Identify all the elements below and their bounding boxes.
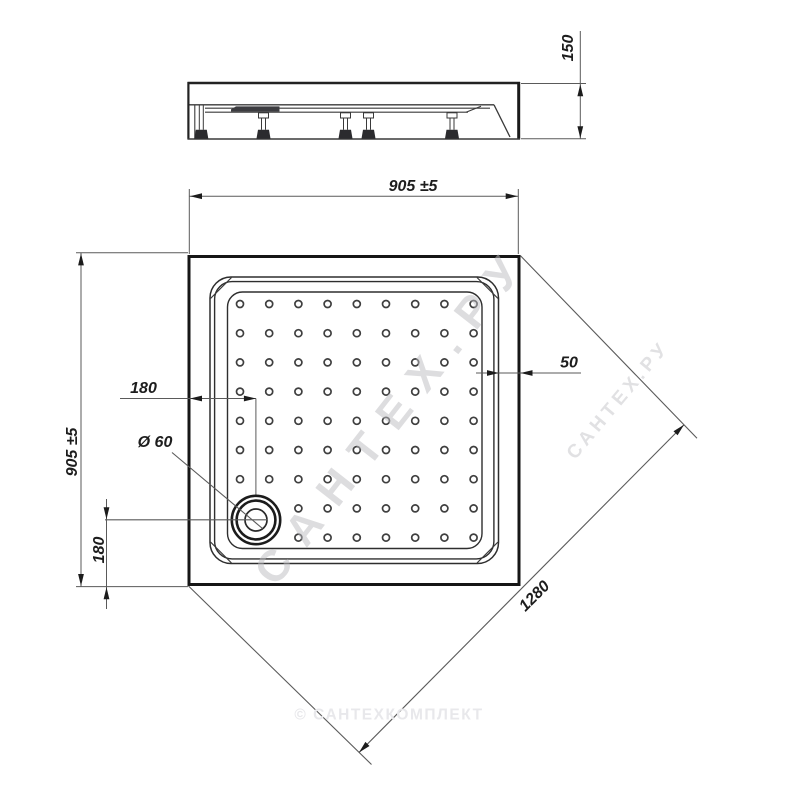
- svg-text:905 ±5: 905 ±5: [389, 178, 439, 195]
- svg-text:180: 180: [130, 380, 157, 397]
- svg-text:© САНТЕХКОМПЛЕКТ: © САНТЕХКОМПЛЕКТ: [294, 707, 483, 724]
- svg-text:150: 150: [560, 35, 577, 62]
- svg-text:САНТЕХ.РУ: САНТЕХ.РУ: [563, 337, 674, 464]
- svg-text:180: 180: [91, 537, 108, 564]
- svg-text:905 ±5: 905 ±5: [64, 426, 81, 476]
- svg-text:50: 50: [560, 355, 578, 372]
- svg-text:САНТЕХ.РУ: САНТЕХ.РУ: [245, 234, 542, 594]
- svg-text:1280: 1280: [516, 578, 553, 615]
- svg-text:Ø 60: Ø 60: [138, 434, 173, 451]
